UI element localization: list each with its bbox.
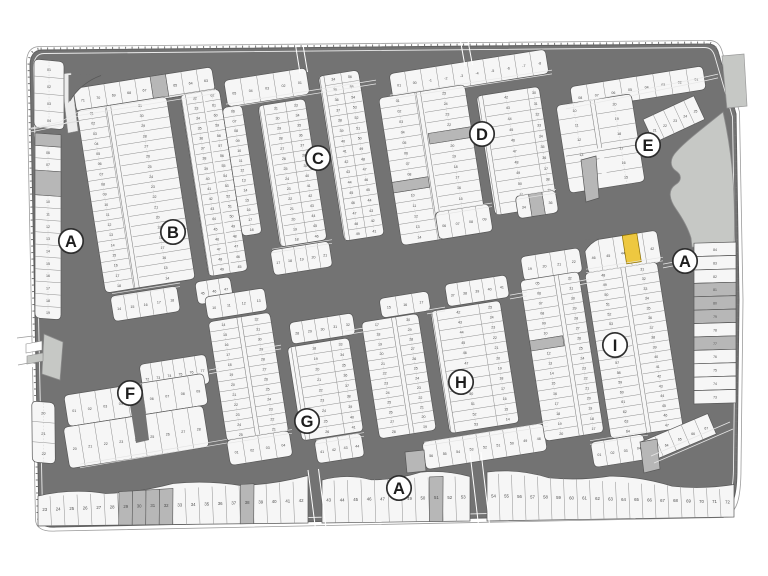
svg-text:C: C xyxy=(312,150,324,168)
svg-text:42: 42 xyxy=(650,247,654,251)
svg-text:45: 45 xyxy=(509,128,513,132)
svg-text:08: 08 xyxy=(181,392,185,396)
svg-text:41: 41 xyxy=(207,187,211,191)
svg-text:45: 45 xyxy=(201,291,205,295)
svg-text:23: 23 xyxy=(445,113,449,117)
svg-text:01: 01 xyxy=(397,84,401,88)
svg-text:34: 34 xyxy=(296,113,300,117)
svg-text:15: 15 xyxy=(624,176,628,180)
svg-text:07: 07 xyxy=(165,395,169,399)
svg-text:45: 45 xyxy=(349,191,353,195)
svg-text:57: 57 xyxy=(615,361,619,365)
svg-text:-3: -3 xyxy=(460,74,463,78)
svg-text:39: 39 xyxy=(340,129,344,133)
svg-text:48: 48 xyxy=(515,160,519,164)
svg-text:42: 42 xyxy=(344,160,348,164)
svg-text:19: 19 xyxy=(588,407,592,411)
svg-text:46: 46 xyxy=(236,255,240,259)
svg-text:41: 41 xyxy=(285,499,290,504)
svg-text:23: 23 xyxy=(417,386,421,390)
svg-text:35: 35 xyxy=(204,501,209,506)
svg-text:10: 10 xyxy=(46,200,50,204)
svg-text:08: 08 xyxy=(407,173,411,177)
svg-text:14: 14 xyxy=(165,276,169,280)
svg-text:37: 37 xyxy=(544,167,548,171)
svg-text:32: 32 xyxy=(568,276,572,280)
svg-text:05: 05 xyxy=(96,152,100,156)
svg-text:16: 16 xyxy=(46,274,50,278)
svg-text:19: 19 xyxy=(300,257,304,261)
svg-text:06: 06 xyxy=(442,224,446,228)
svg-text:09: 09 xyxy=(483,218,487,222)
svg-text:43: 43 xyxy=(458,321,462,325)
svg-text:E: E xyxy=(642,137,653,155)
svg-text:39: 39 xyxy=(475,290,479,294)
svg-text:A: A xyxy=(393,480,405,498)
svg-text:02: 02 xyxy=(250,448,254,452)
svg-text:30: 30 xyxy=(571,296,575,300)
svg-text:20: 20 xyxy=(613,103,617,107)
svg-text:19: 19 xyxy=(528,267,532,271)
svg-text:54: 54 xyxy=(491,493,496,498)
svg-text:21: 21 xyxy=(585,387,589,391)
svg-text:I: I xyxy=(613,337,618,355)
svg-text:08: 08 xyxy=(540,312,544,316)
svg-text:75: 75 xyxy=(178,373,182,377)
svg-text:11: 11 xyxy=(106,213,110,217)
svg-text:25: 25 xyxy=(284,167,288,171)
svg-text:24: 24 xyxy=(444,102,448,106)
svg-text:29: 29 xyxy=(141,124,145,128)
svg-text:25: 25 xyxy=(387,401,391,405)
svg-text:59: 59 xyxy=(618,381,622,385)
svg-text:02: 02 xyxy=(47,85,51,89)
svg-text:20: 20 xyxy=(587,397,591,401)
svg-text:47: 47 xyxy=(513,150,517,154)
svg-text:18: 18 xyxy=(312,347,316,351)
svg-text:05: 05 xyxy=(232,92,236,96)
svg-text:45: 45 xyxy=(662,404,666,408)
svg-text:43: 43 xyxy=(369,209,373,213)
svg-text:15: 15 xyxy=(164,266,168,270)
svg-text:15: 15 xyxy=(504,407,508,411)
svg-text:39: 39 xyxy=(348,405,352,409)
svg-text:11: 11 xyxy=(413,204,417,208)
svg-text:28: 28 xyxy=(279,137,283,141)
svg-text:55: 55 xyxy=(443,452,447,456)
svg-text:24: 24 xyxy=(415,376,419,380)
svg-text:03: 03 xyxy=(47,102,51,106)
svg-text:31: 31 xyxy=(274,107,278,111)
svg-text:34: 34 xyxy=(331,77,335,81)
svg-text:F: F xyxy=(125,385,135,403)
svg-text:42: 42 xyxy=(308,194,312,198)
svg-text:17: 17 xyxy=(115,274,119,278)
svg-text:36: 36 xyxy=(542,156,546,160)
svg-text:18: 18 xyxy=(170,299,174,303)
svg-text:25: 25 xyxy=(150,435,154,439)
svg-text:03: 03 xyxy=(265,86,269,90)
svg-text:20: 20 xyxy=(559,432,563,436)
svg-text:26: 26 xyxy=(264,378,268,382)
svg-text:43: 43 xyxy=(659,384,663,388)
svg-text:24: 24 xyxy=(322,409,326,413)
svg-text:49: 49 xyxy=(523,439,527,443)
svg-text:44: 44 xyxy=(212,217,216,221)
svg-text:34: 34 xyxy=(522,205,526,209)
svg-text:33: 33 xyxy=(194,106,198,110)
svg-text:30: 30 xyxy=(258,338,262,342)
svg-text:59: 59 xyxy=(215,124,219,128)
svg-text:30: 30 xyxy=(406,318,410,322)
svg-text:51: 51 xyxy=(356,126,360,130)
svg-text:06: 06 xyxy=(537,291,541,295)
svg-text:16: 16 xyxy=(114,264,118,268)
svg-text:64: 64 xyxy=(665,443,669,447)
svg-text:16: 16 xyxy=(457,186,461,190)
svg-text:47: 47 xyxy=(464,361,468,365)
svg-text:51: 51 xyxy=(434,495,439,500)
svg-text:15: 15 xyxy=(551,382,555,386)
svg-text:10: 10 xyxy=(104,203,108,207)
svg-text:22: 22 xyxy=(572,260,576,264)
svg-text:02: 02 xyxy=(397,109,401,113)
svg-text:42: 42 xyxy=(456,310,460,314)
svg-text:62: 62 xyxy=(623,410,627,414)
svg-text:10: 10 xyxy=(544,332,548,336)
svg-text:38: 38 xyxy=(202,157,206,161)
svg-text:42: 42 xyxy=(299,498,304,503)
svg-text:39: 39 xyxy=(653,345,657,349)
svg-text:23: 23 xyxy=(491,326,495,330)
svg-text:51: 51 xyxy=(496,444,500,448)
svg-text:22: 22 xyxy=(663,124,667,128)
svg-text:21: 21 xyxy=(420,406,424,410)
svg-text:38: 38 xyxy=(546,178,550,182)
svg-text:31: 31 xyxy=(256,328,260,332)
svg-text:36: 36 xyxy=(335,98,339,102)
svg-text:32: 32 xyxy=(255,318,259,322)
svg-text:03: 03 xyxy=(624,449,628,453)
svg-text:18: 18 xyxy=(46,299,50,303)
svg-text:01: 01 xyxy=(396,99,400,103)
svg-text:42: 42 xyxy=(657,375,661,379)
svg-text:17: 17 xyxy=(501,387,505,391)
svg-text:30: 30 xyxy=(137,504,142,509)
svg-text:14: 14 xyxy=(117,307,121,311)
svg-text:20: 20 xyxy=(450,144,454,148)
svg-text:46: 46 xyxy=(463,351,467,355)
svg-text:72: 72 xyxy=(145,378,149,382)
svg-text:24: 24 xyxy=(386,391,390,395)
svg-text:44: 44 xyxy=(660,394,664,398)
svg-text:34: 34 xyxy=(645,297,649,301)
svg-text:21: 21 xyxy=(653,129,657,133)
svg-text:23: 23 xyxy=(673,119,677,123)
svg-text:31: 31 xyxy=(333,325,337,329)
svg-text:26: 26 xyxy=(83,506,88,511)
svg-text:48: 48 xyxy=(218,258,222,262)
svg-text:-6: -6 xyxy=(507,66,510,70)
svg-text:71: 71 xyxy=(81,98,85,102)
svg-text:45: 45 xyxy=(238,265,242,269)
svg-text:64: 64 xyxy=(189,81,193,85)
svg-text:22: 22 xyxy=(42,451,47,456)
svg-text:36: 36 xyxy=(299,134,303,138)
svg-text:13: 13 xyxy=(548,362,552,366)
svg-text:65: 65 xyxy=(678,438,682,442)
svg-text:10: 10 xyxy=(573,109,577,113)
svg-text:37: 37 xyxy=(300,144,304,148)
svg-text:36: 36 xyxy=(343,374,347,378)
svg-text:38: 38 xyxy=(245,500,250,505)
svg-text:20: 20 xyxy=(543,265,547,269)
svg-text:22: 22 xyxy=(234,403,238,407)
svg-text:10: 10 xyxy=(411,194,415,198)
svg-text:25: 25 xyxy=(694,110,698,114)
svg-text:76: 76 xyxy=(713,355,717,359)
svg-text:14: 14 xyxy=(506,418,510,422)
svg-text:19: 19 xyxy=(378,343,382,347)
svg-text:48: 48 xyxy=(354,222,358,226)
svg-text:14: 14 xyxy=(221,323,225,327)
svg-text:41: 41 xyxy=(500,286,504,290)
svg-text:44: 44 xyxy=(508,117,512,121)
svg-text:55: 55 xyxy=(504,494,509,499)
svg-text:30: 30 xyxy=(276,117,280,121)
svg-text:25: 25 xyxy=(266,388,270,392)
svg-text:31: 31 xyxy=(150,503,155,508)
svg-text:16: 16 xyxy=(144,303,148,307)
svg-text:44: 44 xyxy=(460,331,464,335)
svg-text:63: 63 xyxy=(624,420,628,424)
svg-text:47: 47 xyxy=(217,248,221,252)
svg-text:02: 02 xyxy=(611,451,615,455)
svg-text:38: 38 xyxy=(338,119,342,123)
svg-text:26: 26 xyxy=(146,155,150,159)
svg-text:26: 26 xyxy=(577,337,581,341)
svg-text:45: 45 xyxy=(214,227,218,231)
svg-text:16: 16 xyxy=(225,343,229,347)
svg-text:47: 47 xyxy=(665,423,669,427)
svg-text:04: 04 xyxy=(281,443,285,447)
svg-text:17: 17 xyxy=(157,301,161,305)
svg-text:33: 33 xyxy=(177,502,182,507)
svg-text:47: 47 xyxy=(380,496,385,501)
svg-text:78: 78 xyxy=(713,328,717,332)
svg-text:24: 24 xyxy=(580,357,584,361)
svg-text:20: 20 xyxy=(315,368,319,372)
svg-text:37: 37 xyxy=(336,108,340,112)
svg-text:05: 05 xyxy=(536,281,540,285)
svg-text:80: 80 xyxy=(713,302,717,306)
svg-text:11: 11 xyxy=(227,304,231,308)
svg-text:20: 20 xyxy=(380,352,384,356)
svg-text:82: 82 xyxy=(713,275,717,279)
svg-text:46: 46 xyxy=(315,234,319,238)
svg-text:42: 42 xyxy=(332,448,336,452)
svg-text:52: 52 xyxy=(226,194,230,198)
svg-text:22: 22 xyxy=(493,336,497,340)
svg-text:20: 20 xyxy=(496,356,500,360)
svg-text:47: 47 xyxy=(363,168,367,172)
svg-text:28: 28 xyxy=(409,338,413,342)
svg-text:25: 25 xyxy=(488,305,492,309)
svg-text:37: 37 xyxy=(231,500,236,505)
svg-text:17: 17 xyxy=(455,176,459,180)
svg-text:17: 17 xyxy=(46,287,50,291)
svg-text:40: 40 xyxy=(654,355,658,359)
svg-text:68: 68 xyxy=(127,91,131,95)
svg-text:52: 52 xyxy=(473,412,477,416)
svg-text:20: 20 xyxy=(422,415,426,419)
svg-text:76: 76 xyxy=(190,371,194,375)
svg-text:11: 11 xyxy=(46,213,50,217)
svg-text:22: 22 xyxy=(319,388,323,392)
svg-text:34: 34 xyxy=(340,353,344,357)
svg-text:18: 18 xyxy=(117,284,121,288)
svg-text:75: 75 xyxy=(713,369,717,373)
svg-text:41: 41 xyxy=(343,150,347,154)
svg-text:38: 38 xyxy=(347,395,351,399)
svg-text:24: 24 xyxy=(490,316,494,320)
svg-text:50: 50 xyxy=(469,392,473,396)
svg-text:60: 60 xyxy=(569,495,574,500)
svg-text:58: 58 xyxy=(217,134,221,138)
svg-text:06: 06 xyxy=(231,110,235,114)
svg-text:52: 52 xyxy=(607,313,611,317)
svg-text:40: 40 xyxy=(350,415,354,419)
svg-text:25: 25 xyxy=(414,367,418,371)
svg-text:44: 44 xyxy=(348,181,352,185)
svg-text:61: 61 xyxy=(621,400,625,404)
svg-text:46: 46 xyxy=(511,139,515,143)
svg-text:24: 24 xyxy=(237,423,241,427)
svg-text:53: 53 xyxy=(470,448,474,452)
svg-text:-2: -2 xyxy=(444,76,447,80)
svg-text:28: 28 xyxy=(295,331,299,335)
svg-text:04: 04 xyxy=(637,447,641,451)
svg-text:14: 14 xyxy=(550,372,554,376)
svg-text:12: 12 xyxy=(240,169,244,173)
svg-text:22: 22 xyxy=(288,197,292,201)
svg-text:41: 41 xyxy=(352,426,356,430)
svg-text:44: 44 xyxy=(340,497,345,502)
svg-text:19: 19 xyxy=(452,155,456,159)
svg-text:02: 02 xyxy=(282,84,286,88)
svg-text:15: 15 xyxy=(112,254,116,258)
svg-text:43: 43 xyxy=(506,106,510,110)
svg-text:18: 18 xyxy=(295,237,299,241)
svg-text:29: 29 xyxy=(259,348,263,352)
svg-text:38: 38 xyxy=(651,336,655,340)
svg-text:46: 46 xyxy=(351,201,355,205)
svg-text:18: 18 xyxy=(250,228,254,232)
svg-text:16: 16 xyxy=(247,208,251,212)
svg-text:51: 51 xyxy=(606,303,610,307)
svg-text:56: 56 xyxy=(220,154,224,158)
svg-text:52: 52 xyxy=(483,446,487,450)
svg-text:23: 23 xyxy=(119,440,123,444)
svg-text:65: 65 xyxy=(634,497,639,502)
svg-text:21: 21 xyxy=(381,362,385,366)
svg-text:27: 27 xyxy=(411,347,415,351)
svg-text:31: 31 xyxy=(640,267,644,271)
svg-text:23: 23 xyxy=(384,381,388,385)
svg-text:56: 56 xyxy=(517,494,522,499)
svg-text:16: 16 xyxy=(162,256,166,260)
svg-text:46: 46 xyxy=(215,237,219,241)
svg-text:39: 39 xyxy=(258,499,263,504)
svg-text:44: 44 xyxy=(311,214,315,218)
svg-text:35: 35 xyxy=(541,145,545,149)
svg-text:19: 19 xyxy=(229,373,233,377)
svg-text:49: 49 xyxy=(231,225,235,229)
svg-text:-4: -4 xyxy=(475,71,478,75)
svg-text:42: 42 xyxy=(209,197,213,201)
svg-text:50: 50 xyxy=(518,182,522,186)
svg-text:20: 20 xyxy=(156,216,160,220)
svg-text:A: A xyxy=(65,233,77,251)
svg-text:17: 17 xyxy=(555,402,559,406)
svg-text:08: 08 xyxy=(578,96,582,100)
svg-text:29: 29 xyxy=(277,127,281,131)
svg-text:26: 26 xyxy=(282,157,286,161)
svg-text:15: 15 xyxy=(223,333,227,337)
svg-text:16: 16 xyxy=(503,397,507,401)
svg-text:42: 42 xyxy=(504,95,508,99)
svg-text:25: 25 xyxy=(148,165,152,169)
svg-text:29: 29 xyxy=(573,306,577,310)
svg-text:60: 60 xyxy=(620,390,624,394)
svg-text:15: 15 xyxy=(245,198,249,202)
svg-text:25: 25 xyxy=(324,419,328,423)
svg-text:19: 19 xyxy=(46,311,50,315)
svg-text:06: 06 xyxy=(98,162,102,166)
svg-text:06: 06 xyxy=(150,397,154,401)
svg-text:22: 22 xyxy=(447,123,451,127)
svg-text:56: 56 xyxy=(348,75,352,79)
svg-text:68: 68 xyxy=(673,498,678,503)
svg-text:35: 35 xyxy=(198,127,202,131)
svg-text:33: 33 xyxy=(294,103,298,107)
svg-text:01: 01 xyxy=(72,409,76,413)
svg-text:28: 28 xyxy=(574,316,578,320)
svg-text:50: 50 xyxy=(230,214,234,218)
svg-text:61: 61 xyxy=(212,104,216,108)
svg-text:13: 13 xyxy=(416,225,420,229)
svg-text:17: 17 xyxy=(276,261,280,265)
svg-text:22: 22 xyxy=(153,195,157,199)
svg-text:34: 34 xyxy=(196,116,200,120)
svg-text:28: 28 xyxy=(197,428,201,432)
svg-text:79: 79 xyxy=(713,315,717,319)
svg-text:21: 21 xyxy=(290,207,294,211)
svg-text:67: 67 xyxy=(704,426,708,430)
svg-text:24: 24 xyxy=(267,398,271,402)
svg-text:20: 20 xyxy=(231,383,235,387)
svg-text:04: 04 xyxy=(95,142,99,146)
svg-text:24: 24 xyxy=(56,507,61,512)
svg-text:84: 84 xyxy=(713,248,717,252)
svg-text:24: 24 xyxy=(149,175,153,179)
svg-text:29: 29 xyxy=(308,329,312,333)
svg-text:21: 21 xyxy=(232,393,236,397)
svg-text:26: 26 xyxy=(412,357,416,361)
svg-text:54: 54 xyxy=(223,174,227,178)
svg-text:81: 81 xyxy=(713,288,717,292)
svg-text:03: 03 xyxy=(103,404,107,408)
